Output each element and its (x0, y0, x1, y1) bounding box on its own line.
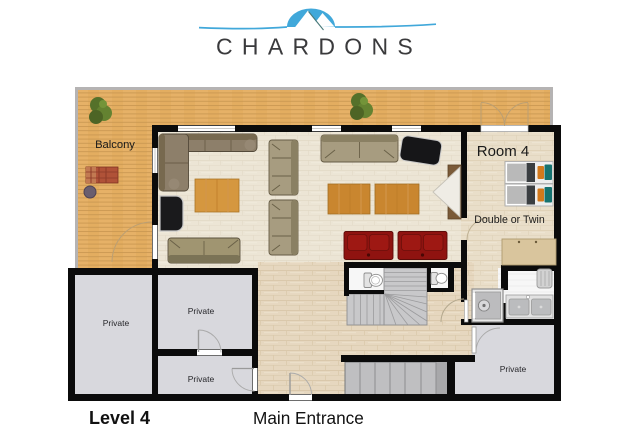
svg-text:Private: Private (103, 318, 130, 328)
svg-text:Private: Private (188, 306, 215, 316)
svg-text:Balcony: Balcony (95, 139, 135, 151)
svg-text:Main Entrance: Main Entrance (253, 408, 364, 428)
svg-text:Private: Private (500, 364, 527, 374)
svg-text:Room 4: Room 4 (477, 143, 530, 160)
svg-text:CHARDONS: CHARDONS (216, 34, 422, 60)
svg-text:Private: Private (188, 374, 215, 384)
svg-text:Double or Twin: Double or Twin (474, 214, 545, 226)
svg-text:Level 4: Level 4 (89, 408, 150, 428)
